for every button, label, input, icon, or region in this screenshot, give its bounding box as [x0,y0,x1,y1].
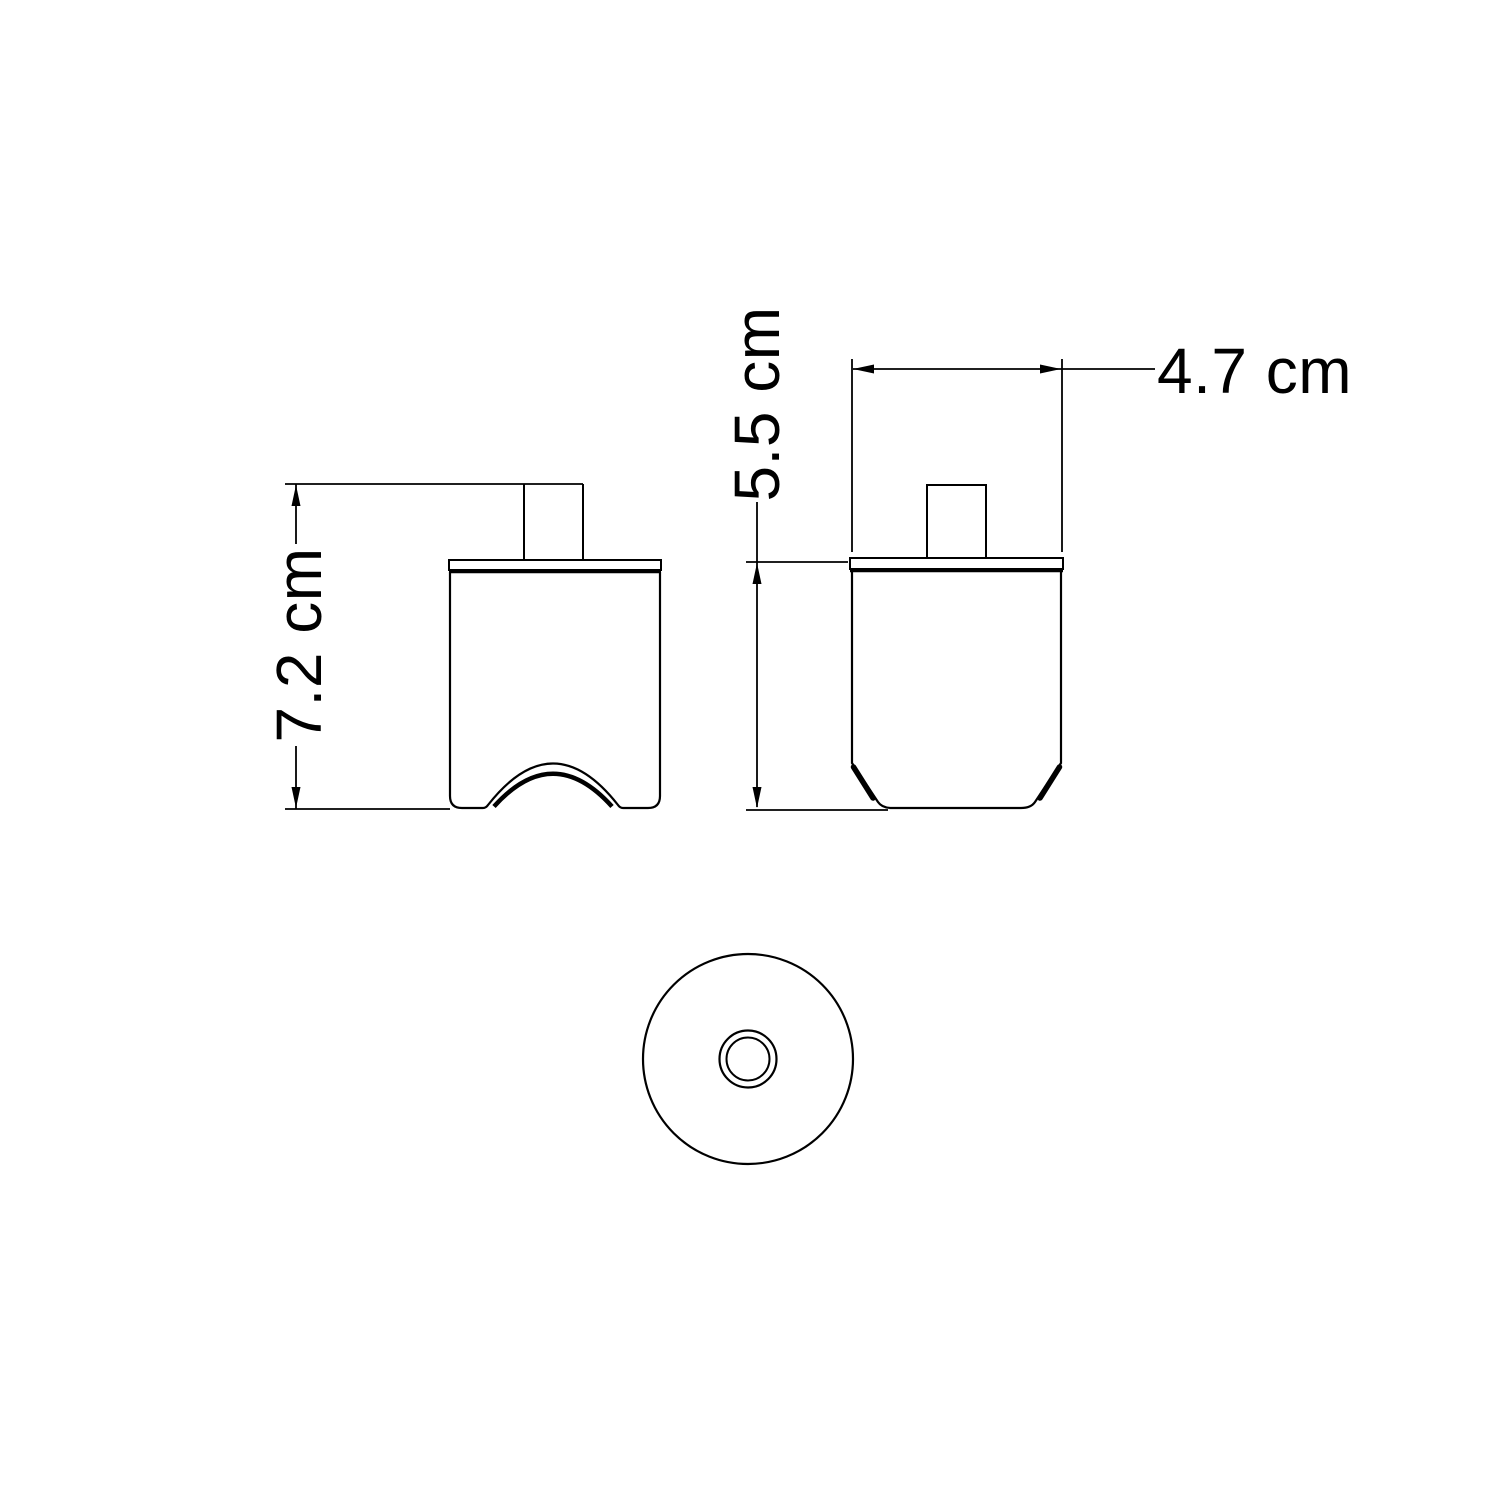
overall-height-label: 7.2 cm [267,535,331,755]
arrow-left-icon [853,365,874,374]
technical-drawing [0,0,1500,1500]
arrow-down-icon [753,787,762,808]
bottom-view-drawing [643,954,853,1164]
side-lid [850,558,1063,571]
body-height-label: 5.5 cm [725,294,789,514]
side-stem [927,485,986,558]
dimension-body-width [852,359,1155,552]
arrow-up-icon [292,485,301,506]
side-chamfer-edges [854,767,1060,798]
bottom-hole-inner-circle [727,1038,770,1081]
arrow-right-icon [1040,365,1061,374]
dimension-body-height [746,502,888,810]
front-lid [449,560,661,572]
bottom-hole-outer-circle [720,1031,777,1088]
arrow-down-icon [292,787,301,808]
front-arch-inner-line [494,774,612,807]
arrow-up-icon [753,563,762,584]
front-view-drawing [449,484,661,808]
side-view-drawing [850,485,1063,808]
body-width-label: 4.7 cm [1157,339,1352,403]
technical-drawing-canvas: 7.2 cm 5.5 cm 4.7 cm [0,0,1500,1500]
front-stem [524,484,583,560]
bottom-outer-circle [643,954,853,1164]
side-body-outline [852,571,1061,808]
